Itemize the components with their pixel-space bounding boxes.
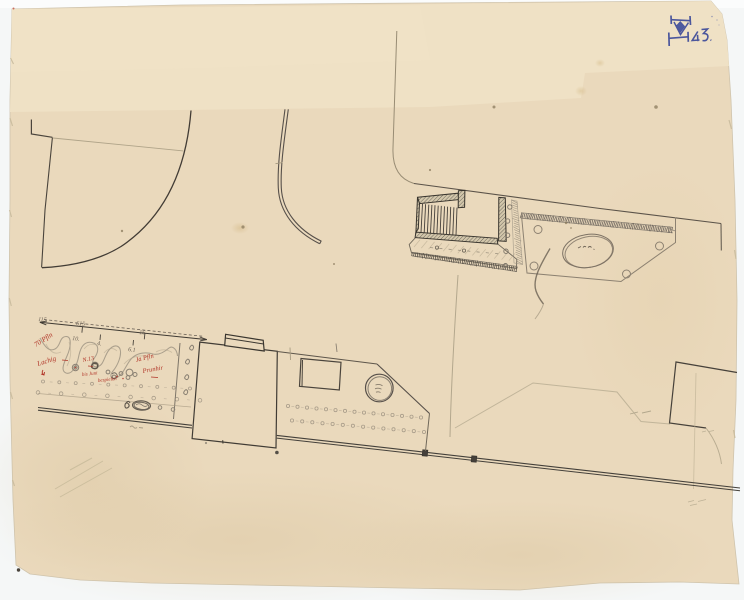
svg-text:6.1: 6.1	[128, 347, 136, 354]
svg-text:16: 16	[139, 330, 146, 337]
svg-text:115: 115	[38, 317, 47, 324]
svg-text:10.: 10.	[72, 336, 80, 343]
svg-text:615: 615	[76, 321, 85, 328]
